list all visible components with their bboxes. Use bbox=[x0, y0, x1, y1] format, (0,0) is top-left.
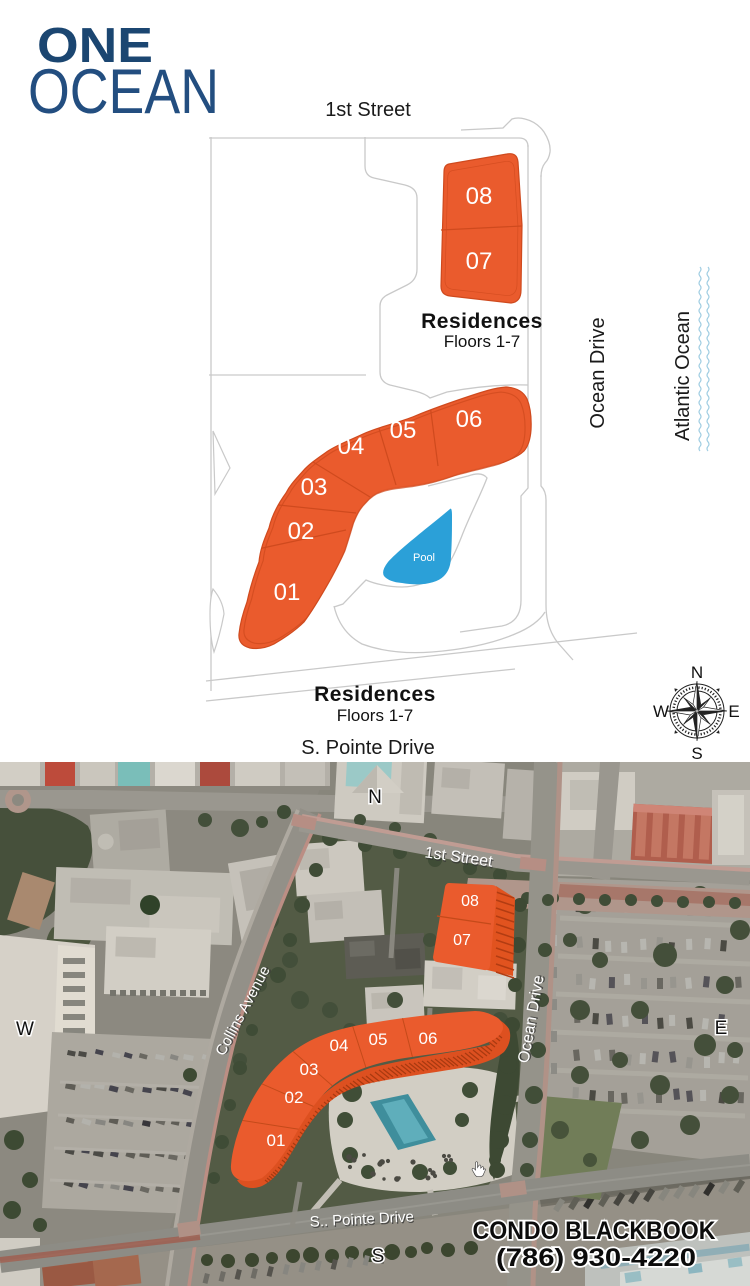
svg-text:02: 02 bbox=[285, 1088, 304, 1107]
svg-text:03: 03 bbox=[300, 1060, 319, 1079]
svg-text:Atlantic Ocean: Atlantic Ocean bbox=[672, 311, 694, 441]
svg-text:OCEAN: OCEAN bbox=[28, 57, 219, 127]
svg-text:S: S bbox=[372, 1246, 385, 1267]
svg-text:CONDO BLACKBOOK: CONDO BLACKBOOK bbox=[473, 1217, 716, 1245]
svg-text:08: 08 bbox=[466, 183, 493, 210]
svg-text:Floors 1-7: Floors 1-7 bbox=[444, 332, 521, 351]
svg-text:Residences: Residences bbox=[314, 683, 436, 706]
svg-text:E: E bbox=[728, 702, 739, 721]
svg-text:07: 07 bbox=[466, 248, 493, 275]
svg-text:01: 01 bbox=[267, 1131, 286, 1150]
svg-text:N: N bbox=[691, 663, 703, 682]
svg-text:07: 07 bbox=[453, 932, 471, 949]
svg-text:06: 06 bbox=[456, 406, 483, 433]
svg-text:(786) 930-4220: (786) 930-4220 bbox=[496, 1244, 696, 1272]
svg-text:N: N bbox=[368, 787, 382, 808]
svg-text:05: 05 bbox=[369, 1030, 388, 1049]
svg-text:02: 02 bbox=[288, 518, 315, 545]
svg-text:06: 06 bbox=[419, 1029, 438, 1048]
svg-text:W: W bbox=[16, 1019, 34, 1040]
svg-text:04: 04 bbox=[338, 433, 365, 460]
svg-text:08: 08 bbox=[461, 893, 479, 910]
svg-text:Ocean Drive: Ocean Drive bbox=[587, 317, 609, 428]
svg-text:Pool: Pool bbox=[413, 552, 435, 564]
svg-text:Residences: Residences bbox=[421, 310, 543, 333]
svg-text:S: S bbox=[691, 744, 702, 763]
svg-text:Floors 1-7: Floors 1-7 bbox=[337, 706, 414, 725]
svg-text:S. Pointe Drive: S. Pointe Drive bbox=[301, 737, 434, 759]
svg-text:05: 05 bbox=[390, 417, 417, 444]
svg-text:1st Street: 1st Street bbox=[325, 99, 411, 121]
svg-text:04: 04 bbox=[330, 1036, 349, 1055]
svg-text:01: 01 bbox=[274, 579, 301, 606]
svg-text:W: W bbox=[653, 702, 669, 721]
svg-text:03: 03 bbox=[301, 474, 328, 501]
svg-text:E: E bbox=[715, 1018, 728, 1039]
